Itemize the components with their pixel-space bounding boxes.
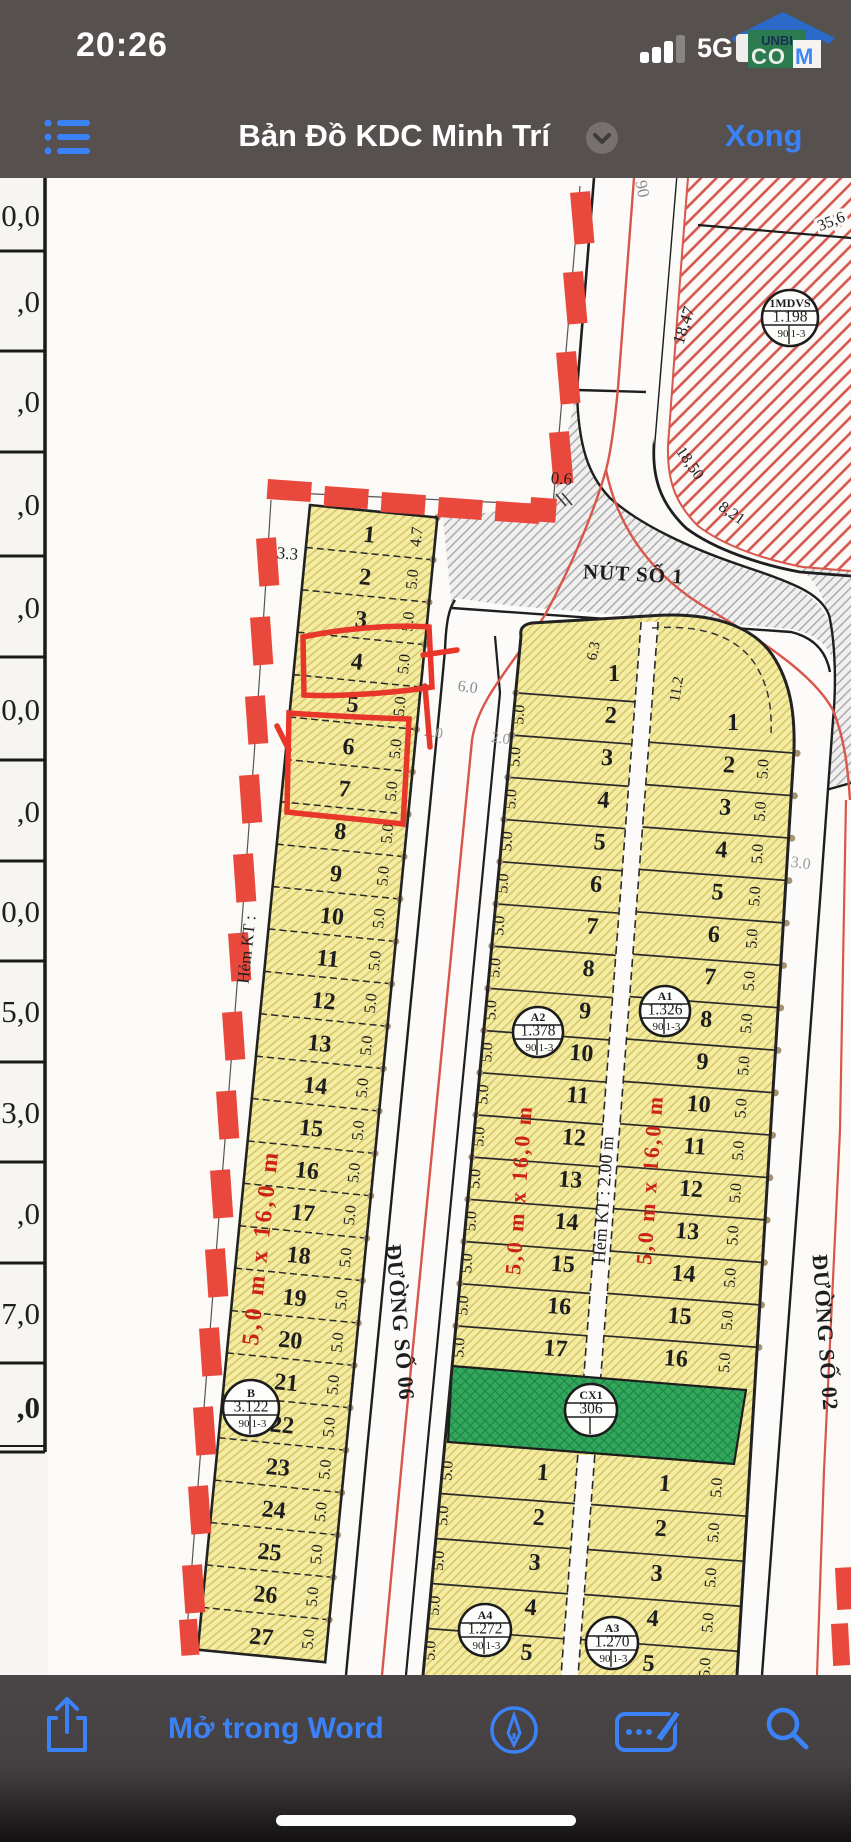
svg-text:9: 9	[696, 1049, 710, 1076]
svg-text:5.0: 5.0	[337, 1247, 356, 1269]
svg-text:5: 5	[642, 1651, 656, 1678]
svg-text:14: 14	[554, 1209, 580, 1237]
svg-text:CO: CO	[751, 44, 786, 69]
svg-text:4: 4	[524, 1595, 538, 1622]
svg-text:5.0: 5.0	[754, 759, 772, 780]
svg-text:5,0: 5,0	[1, 994, 40, 1029]
svg-text:13: 13	[674, 1218, 700, 1246]
svg-text:,0: ,0	[17, 1390, 40, 1425]
svg-text:25: 25	[256, 1539, 282, 1567]
svg-text:3,0: 3,0	[1, 1095, 40, 1130]
svg-text:1.198: 1.198	[773, 309, 808, 326]
svg-text:10: 10	[568, 1040, 594, 1068]
svg-text:5.0: 5.0	[353, 1077, 372, 1099]
svg-text:17: 17	[290, 1199, 316, 1227]
svg-text:1-3: 1-3	[252, 1418, 267, 1430]
svg-text:9: 9	[578, 998, 592, 1025]
svg-text:5.0: 5.0	[366, 950, 385, 972]
svg-text:8: 8	[333, 818, 347, 845]
svg-text:5.0: 5.0	[378, 823, 397, 845]
svg-text:14: 14	[302, 1072, 328, 1100]
svg-text:90: 90	[473, 1640, 485, 1652]
svg-text:90: 90	[653, 1021, 665, 1033]
svg-text:5.0: 5.0	[324, 1374, 343, 1396]
svg-text:5.0: 5.0	[751, 801, 769, 822]
svg-text:2: 2	[654, 1516, 668, 1543]
svg-text:8: 8	[699, 1006, 713, 1033]
svg-text:5.0: 5.0	[341, 1204, 360, 1226]
svg-text:90: 90	[239, 1418, 251, 1430]
svg-text:1-3: 1-3	[791, 328, 806, 340]
svg-text:6: 6	[341, 734, 355, 761]
svg-text:5.0: 5.0	[312, 1501, 331, 1523]
svg-text:4: 4	[646, 1606, 660, 1633]
svg-text:5.0: 5.0	[345, 1162, 364, 1184]
svg-text:4: 4	[715, 837, 729, 864]
svg-text:,0: ,0	[17, 384, 40, 419]
svg-text:5.0: 5.0	[403, 568, 422, 590]
svg-text:5: 5	[711, 879, 725, 906]
svg-text:3: 3	[650, 1561, 664, 1588]
svg-text:1: 1	[658, 1471, 672, 1498]
svg-text:5.0: 5.0	[746, 886, 764, 907]
svg-text:5.0: 5.0	[391, 696, 410, 718]
svg-text:24: 24	[261, 1496, 287, 1524]
svg-text:12: 12	[561, 1124, 587, 1152]
svg-text:5.0: 5.0	[699, 1612, 717, 1633]
svg-text:15: 15	[550, 1251, 576, 1279]
svg-text:23: 23	[265, 1454, 291, 1482]
svg-text:3: 3	[718, 794, 732, 821]
svg-text:5.0: 5.0	[299, 1628, 318, 1650]
svg-text:3: 3	[528, 1550, 542, 1577]
svg-text:16: 16	[294, 1157, 320, 1185]
svg-text:5.0: 5.0	[749, 843, 767, 864]
svg-text:5.0: 5.0	[399, 611, 418, 633]
svg-text:5.0: 5.0	[328, 1332, 347, 1354]
svg-text:1: 1	[727, 710, 739, 736]
svg-text:,0: ,0	[17, 487, 40, 522]
svg-text:2: 2	[722, 752, 736, 779]
svg-text:8: 8	[582, 956, 596, 983]
svg-text:1: 1	[536, 1460, 550, 1487]
svg-text:10: 10	[686, 1091, 712, 1119]
svg-text:1-3: 1-3	[666, 1021, 681, 1033]
svg-text:0,0: 0,0	[1, 692, 40, 727]
svg-text:1.326: 1.326	[648, 1002, 683, 1019]
svg-text:6: 6	[589, 871, 603, 898]
svg-text:2.0: 2.0	[490, 730, 511, 748]
svg-text:306: 306	[579, 1401, 603, 1418]
svg-text:4: 4	[597, 787, 611, 814]
svg-text:5.0: 5.0	[333, 1289, 352, 1311]
svg-text:18: 18	[285, 1242, 311, 1270]
svg-text:1-3: 1-3	[539, 1042, 554, 1054]
svg-text:5.0: 5.0	[374, 865, 393, 887]
svg-text:26: 26	[252, 1581, 278, 1609]
svg-text:3.0: 3.0	[790, 854, 812, 874]
svg-text:5.0: 5.0	[705, 1522, 723, 1543]
svg-text:5.0: 5.0	[316, 1459, 335, 1481]
svg-text:19: 19	[281, 1284, 307, 1312]
svg-text:3: 3	[600, 745, 614, 772]
svg-text:1-3: 1-3	[613, 1653, 628, 1665]
svg-text:90: 90	[526, 1042, 538, 1054]
svg-text:1.270: 1.270	[595, 1634, 630, 1651]
svg-text:16: 16	[663, 1345, 689, 1373]
svg-text:4.7: 4.7	[407, 526, 426, 548]
svg-text:0,0: 0,0	[1, 198, 40, 233]
svg-text:1-3: 1-3	[486, 1640, 501, 1652]
svg-text:20: 20	[277, 1327, 303, 1355]
svg-text:15: 15	[667, 1303, 693, 1331]
svg-text:9: 9	[329, 861, 343, 888]
svg-text:5.0: 5.0	[383, 780, 402, 802]
svg-text:,0: ,0	[17, 1196, 40, 1231]
svg-text:5: 5	[593, 829, 607, 856]
svg-text:,0: ,0	[17, 284, 40, 319]
svg-text:5.0: 5.0	[362, 992, 381, 1014]
svg-text:15: 15	[298, 1115, 324, 1143]
svg-text:0.6: 0.6	[550, 468, 573, 489]
svg-text:5.0: 5.0	[730, 1140, 748, 1161]
svg-text:1: 1	[608, 661, 620, 687]
svg-text:,0: ,0	[17, 590, 40, 625]
svg-text:7: 7	[703, 964, 717, 991]
svg-text:5.0: 5.0	[727, 1183, 745, 1204]
svg-text:7: 7	[337, 776, 351, 803]
svg-text:12: 12	[310, 987, 336, 1015]
svg-text:5.0: 5.0	[738, 1013, 756, 1034]
svg-text:2: 2	[604, 703, 618, 730]
svg-text:7,0: 7,0	[1, 1296, 40, 1331]
svg-text:5.0: 5.0	[304, 1586, 323, 1608]
svg-text:14: 14	[671, 1260, 697, 1288]
svg-text:5.0: 5.0	[732, 1098, 750, 1119]
svg-text:12: 12	[678, 1176, 704, 1204]
svg-text:,0: ,0	[17, 794, 40, 829]
svg-text:5.0: 5.0	[716, 1352, 734, 1373]
svg-text:5.0: 5.0	[308, 1544, 327, 1566]
svg-text:5: 5	[520, 1640, 534, 1667]
svg-text:5.0: 5.0	[719, 1310, 737, 1331]
svg-text:6: 6	[707, 922, 721, 949]
svg-text:2: 2	[532, 1505, 546, 1532]
svg-text:10: 10	[319, 903, 345, 931]
svg-text:7: 7	[585, 914, 599, 941]
svg-text:M: M	[795, 44, 813, 69]
svg-text:5.0: 5.0	[370, 908, 389, 930]
svg-text:3.3: 3.3	[276, 543, 299, 564]
svg-text:17: 17	[543, 1335, 569, 1363]
svg-text:90: 90	[778, 328, 790, 340]
svg-text:11: 11	[683, 1133, 707, 1161]
svg-text:90: 90	[600, 1653, 612, 1665]
svg-text:5.0: 5.0	[735, 1055, 753, 1076]
svg-text:4: 4	[350, 649, 364, 676]
svg-text:27: 27	[248, 1623, 274, 1651]
svg-text:16: 16	[546, 1293, 572, 1321]
svg-text:5.0: 5.0	[741, 971, 759, 992]
svg-text:5.0: 5.0	[387, 738, 406, 760]
svg-text:5.0: 5.0	[721, 1267, 739, 1288]
svg-text:5.0: 5.0	[702, 1567, 720, 1588]
svg-text:13: 13	[557, 1166, 583, 1194]
svg-text:5.0: 5.0	[395, 653, 414, 675]
svg-text:0,0: 0,0	[1, 894, 40, 929]
svg-text:1.272: 1.272	[468, 1621, 503, 1638]
svg-text:5.0: 5.0	[349, 1120, 368, 1142]
svg-text:5.0: 5.0	[743, 928, 761, 949]
svg-text:11: 11	[315, 945, 340, 973]
svg-text:5.0: 5.0	[724, 1225, 742, 1246]
svg-text:5.0: 5.0	[320, 1416, 339, 1438]
svg-text:5.0: 5.0	[358, 1035, 377, 1057]
svg-text:11: 11	[565, 1082, 589, 1110]
svg-text:13: 13	[306, 1030, 332, 1058]
svg-text:1.378: 1.378	[521, 1023, 556, 1040]
svg-text:21: 21	[273, 1369, 299, 1397]
svg-text:3.122: 3.122	[234, 1399, 269, 1416]
svg-text:6.0: 6.0	[457, 678, 479, 698]
svg-text:5.0: 5.0	[708, 1477, 726, 1498]
svg-text:2: 2	[358, 564, 372, 591]
svg-text:1: 1	[362, 522, 376, 549]
